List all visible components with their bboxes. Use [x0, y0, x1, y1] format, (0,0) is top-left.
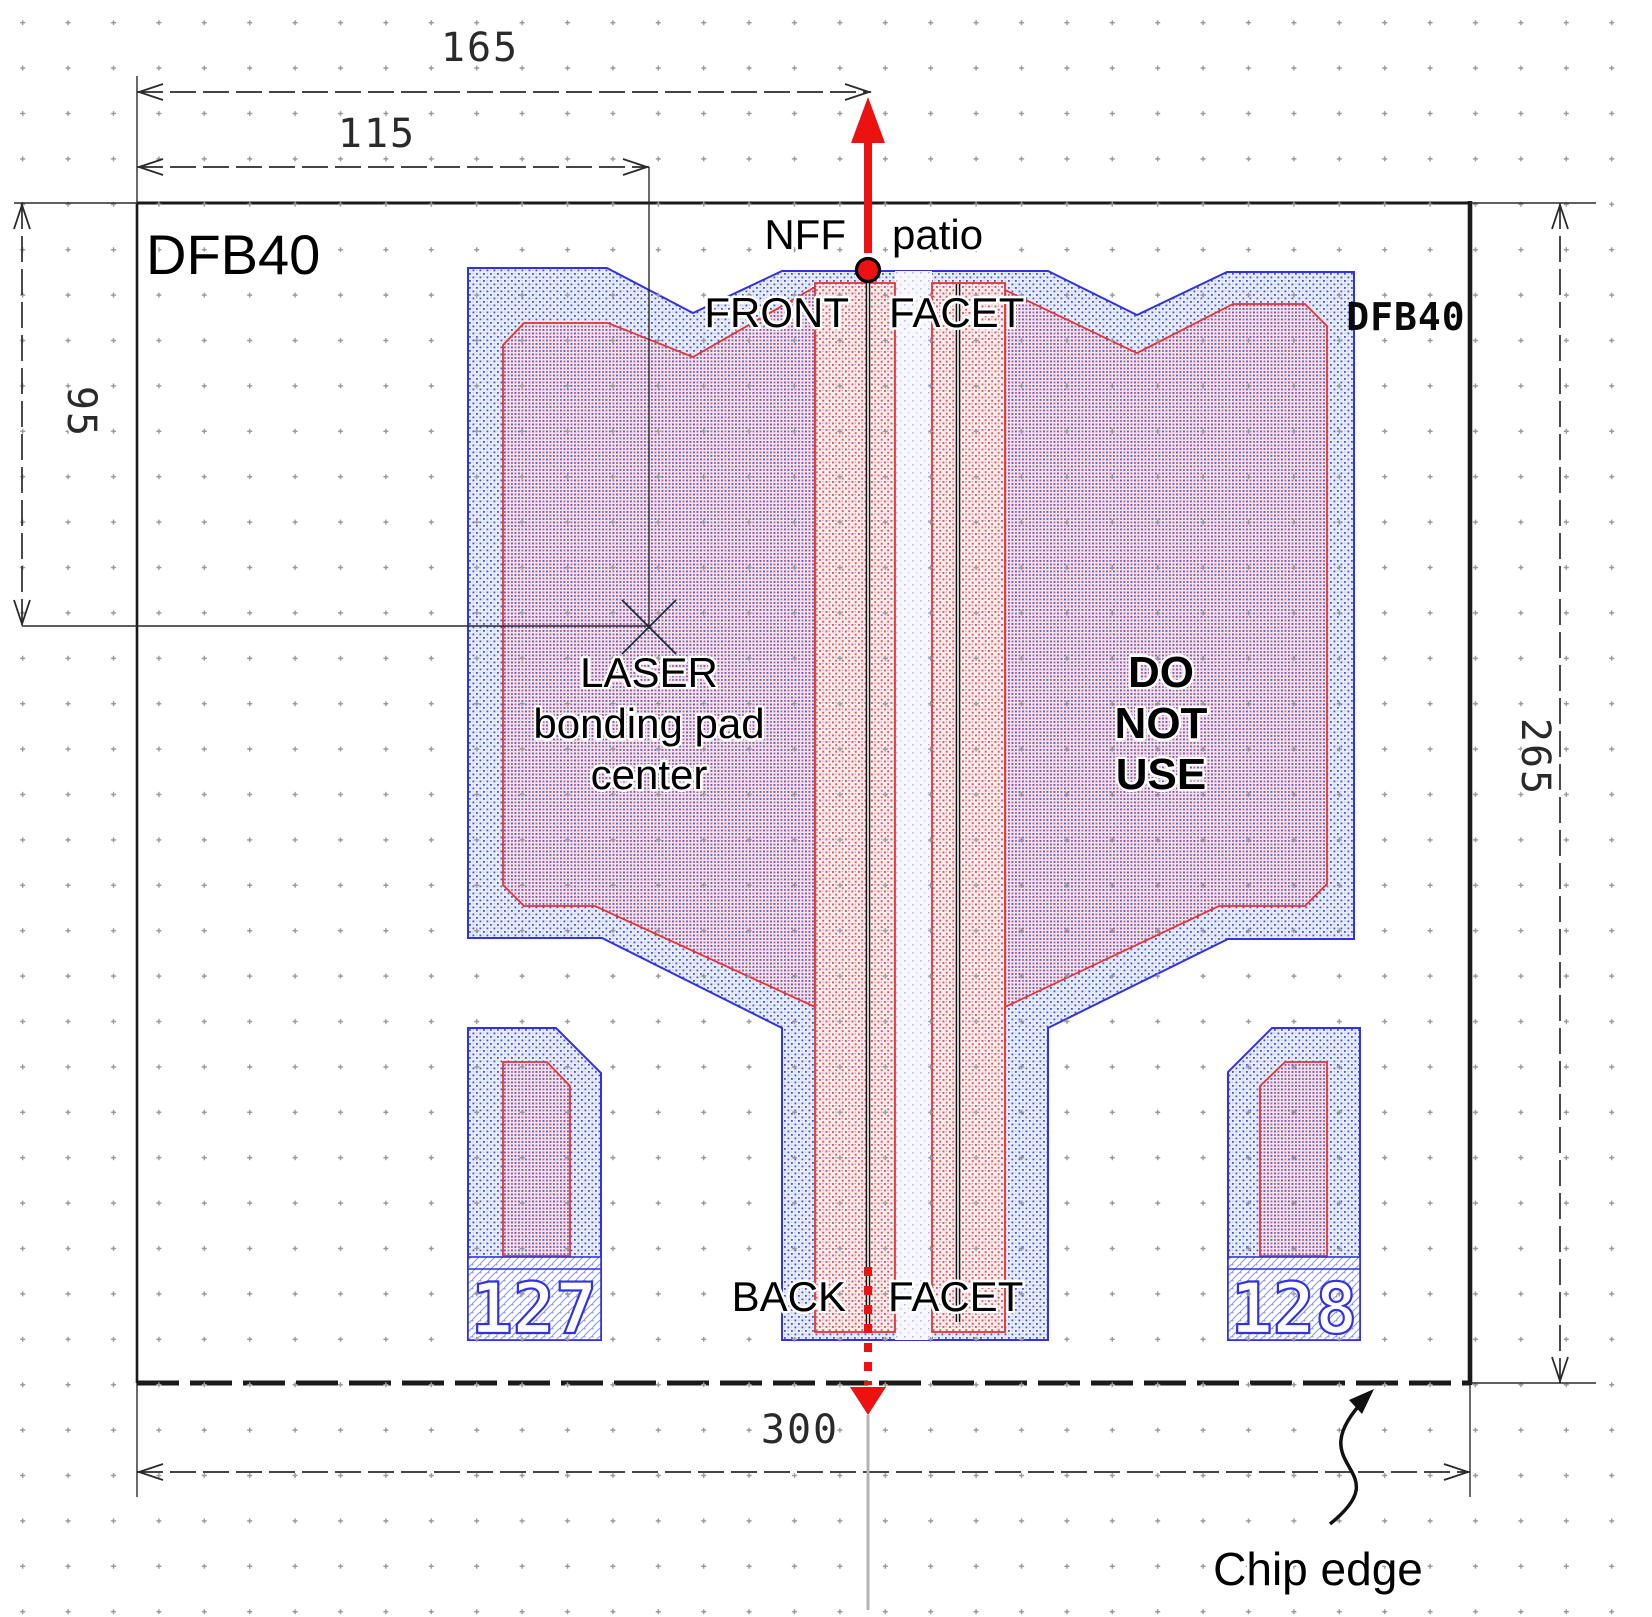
dim-value-165: 165 [441, 25, 519, 71]
dim-value-265: 265 [1512, 718, 1558, 796]
laser-pad-label-line2: bonding pad [533, 700, 764, 747]
laser-pad-label-line1: LASER [580, 649, 718, 696]
chip-layout-drawing: 127 128 [0, 0, 1652, 1617]
dim-value-95: 95 [58, 386, 104, 438]
front-facet-label-left: FRONT [704, 289, 849, 336]
do-not-use-line2: NOT [1115, 699, 1208, 748]
nff-point-marker [857, 259, 880, 282]
chip-edge-label: Chip edge [1213, 1543, 1423, 1595]
back-facet-label-left: BACK [732, 1273, 846, 1320]
dim-value-115: 115 [338, 111, 416, 157]
dim-value-300: 300 [761, 1407, 839, 1453]
patio-label: patio [892, 211, 983, 258]
back-facet-label-right: FACET [888, 1273, 1023, 1320]
nff-arrow-shaft [864, 141, 872, 253]
chip-name-top-left: DFB40 [146, 223, 320, 286]
front-facet-label-right: FACET [889, 289, 1024, 336]
do-not-use-line3: USE [1116, 750, 1206, 799]
nff-label: NFF [764, 211, 846, 258]
do-not-use-line1: DO [1128, 648, 1194, 697]
layout-viewport: 127 128 [0, 0, 1652, 1617]
chip-name-stencil: DFB40 [1346, 295, 1465, 339]
laser-pad-label-line3: center [591, 751, 708, 798]
